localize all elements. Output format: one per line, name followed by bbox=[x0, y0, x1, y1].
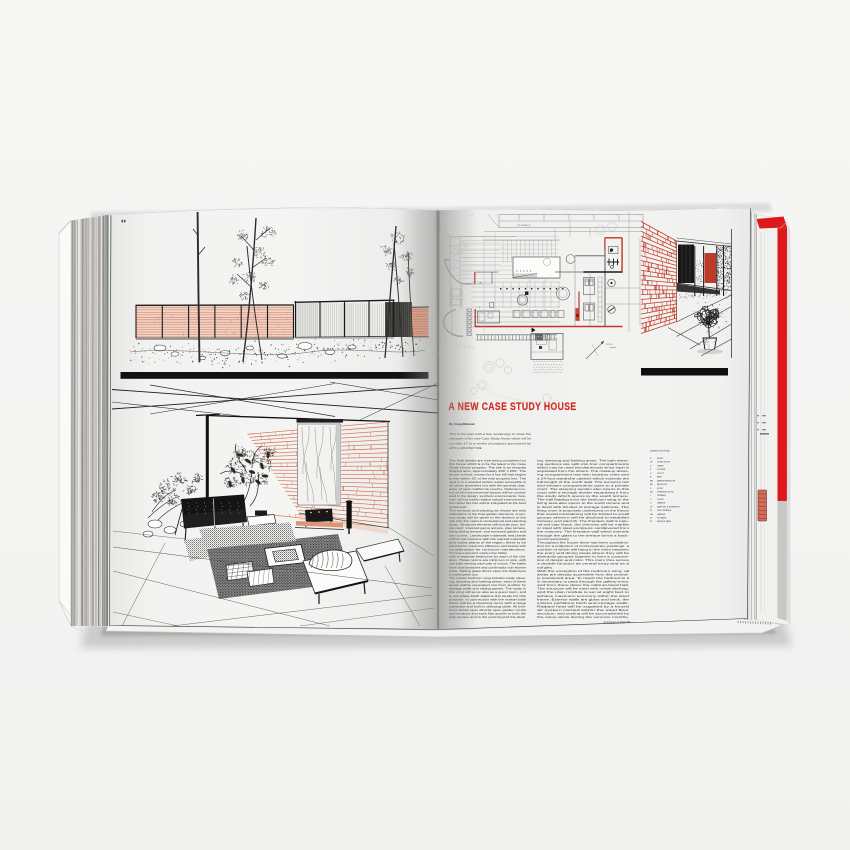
svg-text:BEDROOM: BEDROOM bbox=[657, 484, 667, 486]
svg-text:is lined with 22-feet of stora: is lined with 22-feet of storage cabinet… bbox=[537, 505, 630, 509]
svg-text:NORTH: NORTH bbox=[606, 344, 613, 346]
svg-text:areas are directly accessible: areas are directly accessible from this … bbox=[537, 572, 629, 576]
svg-text:a 24-foot wardrobe cabinet whi: a 24-foot wardrobe cabinet which extends… bbox=[537, 476, 630, 480]
svg-text:DRESSING ROOM: DRESSING ROOM bbox=[657, 492, 674, 494]
svg-text:DINING: DINING bbox=[657, 465, 664, 467]
svg-text:ly positioned area. To reach: ly positioned area. To reach the bedroom… bbox=[537, 576, 629, 580]
svg-text:the study which opens to the s: the study which opens to the south terra… bbox=[537, 494, 629, 498]
svg-text:that social entertaining will: that social entertaining will be limited… bbox=[537, 512, 630, 516]
svg-text:Throughout the house there has: Throughout the house there has been cons… bbox=[537, 540, 629, 544]
svg-text:living room is purposely under: living room is purposely undersized on t… bbox=[537, 508, 630, 512]
svg-text:the masonry. The fireplace wa: the masonry. The fireplace wall which ex… bbox=[537, 530, 630, 534]
svg-text:STUDY: STUDY bbox=[657, 488, 664, 490]
svg-text:ing compartment has twin lavat: ing compartment has twin lavatory units … bbox=[537, 473, 630, 477]
svg-text:KITCHEN: KITCHEN bbox=[657, 469, 666, 471]
svg-text:UTILITY: UTILITY bbox=[657, 473, 665, 475]
svg-text:and shower compartments open t: and shower compartments open to a privat… bbox=[537, 483, 630, 487]
svg-text:frame. Exterior walls are gla: frame. Exterior walls are glass and bric… bbox=[537, 597, 630, 601]
svg-text:ing, dressing and bathing area: ing, dressing and bathing areas. The bat… bbox=[537, 459, 629, 463]
svg-text:structure, and cooling will be: structure, and cooling will be accomplis… bbox=[537, 612, 630, 616]
svg-text:and the plan module is set at: and the plan module is set at eight feet… bbox=[537, 590, 630, 594]
svg-text:T E R R A C E: T E R R A C E bbox=[517, 224, 531, 227]
svg-text:which may be used simultaneous: which may be used simultaneously since e… bbox=[537, 466, 630, 470]
svg-text:court with a storage divider s: court with a storage divider separating … bbox=[537, 491, 630, 495]
svg-text:ing sections are split into fo: ing sections are split into four compart… bbox=[537, 462, 630, 466]
svg-text:living area also opens to the: living area also opens to the south terr… bbox=[537, 501, 630, 505]
svg-text:and from there down the cabine: and from there down the cabinet-lined ha… bbox=[537, 583, 629, 587]
svg-text:SERVICE YARD: SERVICE YARD bbox=[657, 520, 672, 523]
svg-text:abstractly grouped together to: abstractly grouped together to form a co… bbox=[537, 555, 629, 559]
svg-text:The structure will be steel wi: The structure will be steel with metal d… bbox=[537, 587, 629, 591]
svg-text:achieve maximum economy within: achieve maximum economy within the steel bbox=[537, 594, 630, 598]
svg-text:With the exception of the bedr: With the exception of the bedroom wing, … bbox=[537, 569, 630, 573]
svg-text:ral red clay block, the chimne: ral red clay block, the chimney will be … bbox=[537, 523, 630, 527]
svg-text:through the glass to the terra: through the glass to the terrace forms a… bbox=[537, 533, 629, 537]
svg-text:is necessary to pass through t: is necessary to pass through the gallery… bbox=[537, 580, 629, 584]
svg-text:court. The sleeping section a: court. The sleeping section also opens t… bbox=[537, 487, 630, 491]
svg-text:The hall leading from the bedr: The hall leading from the bedroom wing t… bbox=[537, 498, 630, 502]
svg-text:a double function as central e: a double function as central entry and a… bbox=[537, 562, 630, 566]
svg-text:(Continued on Page 35): (Continued on Page 35) bbox=[603, 621, 630, 624]
svg-text:the same ducts during the summ: the same ducts during the summer months. bbox=[537, 615, 629, 619]
svg-text:P: P bbox=[610, 249, 612, 253]
svg-text:full length of the north wall.: full length of the north wall. The terra… bbox=[537, 480, 630, 484]
svg-text:PLAY TERRACE: PLAY TERRACE bbox=[657, 509, 672, 512]
svg-text:separated from the others. Th: separated from the others. The makeup dr… bbox=[537, 469, 629, 473]
svg-text:LIVING ROOM: LIVING ROOM bbox=[657, 462, 670, 464]
svg-text:or steel with steel enclosure: or steel with steel enclosure cantilever… bbox=[537, 526, 630, 530]
svg-text:COURT: COURT bbox=[657, 499, 665, 501]
svg-text:LEGEND FOR PLAN: LEGEND FOR PLAN bbox=[650, 450, 670, 453]
svg-text:air system carried within the: air system carried within the steel floo… bbox=[537, 608, 629, 612]
svg-text:number of which will hang in t: number of which will hang in the entry b… bbox=[537, 548, 630, 552]
svg-text:GARDEN: GARDEN bbox=[657, 513, 666, 516]
svg-text:MASTER BEDROOM: MASTER BEDROOM bbox=[657, 479, 676, 482]
svg-text:small gallery.: small gallery. bbox=[537, 565, 553, 569]
svg-text:intimacy and warmth. The fire: intimacy and warmth. The fireplace wall … bbox=[537, 519, 629, 523]
svg-text:ENTRY: ENTRY bbox=[657, 458, 664, 460]
svg-text:tion of design and color. Thi: tion of design and color. This room thus… bbox=[537, 558, 630, 562]
svg-text:groups where it will be declin: groups where it will be declined to esta… bbox=[537, 516, 630, 520]
svg-text:CARPORT & WORKSHOP: CARPORT & WORKSHOP bbox=[657, 505, 680, 508]
svg-text:GARAGE: GARAGE bbox=[657, 502, 666, 505]
svg-text:Radiant heat will be supplied: Radiant heat will be supplied by a force… bbox=[537, 605, 630, 609]
svg-text:BATH: BATH bbox=[657, 476, 663, 479]
svg-text:TERRACE: TERRACE bbox=[657, 494, 667, 497]
svg-text:interior partitions birch and: interior partitions birch and storage wa… bbox=[537, 601, 629, 605]
svg-text:ground for special planting.: ground for special planting. bbox=[537, 537, 570, 541]
svg-text:STORAGE: STORAGE bbox=[657, 517, 667, 520]
svg-text:tion for a collection of conte: tion for a collection of contemporary pa… bbox=[537, 544, 630, 548]
svg-text:the entry and dining areas whe: the entry and dining areas where they wi… bbox=[537, 551, 630, 555]
